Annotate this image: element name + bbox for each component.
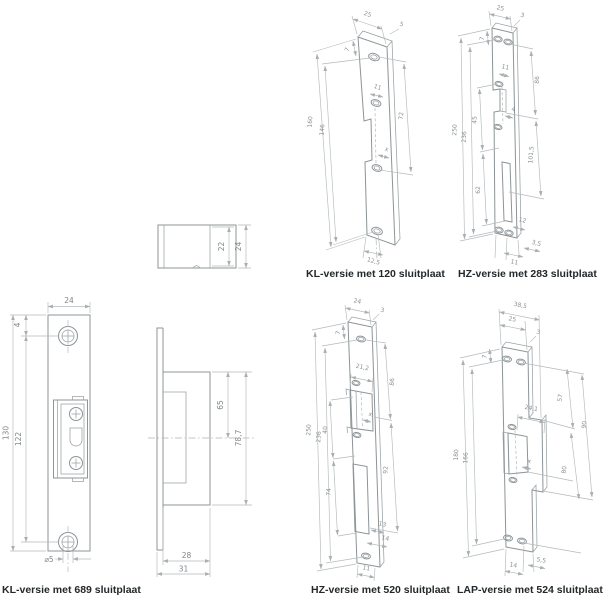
dim-kl120-width: 25 [363,10,373,19]
dim-lap524-thickness: 3 [536,329,541,337]
dim-front-hole-dia: ⌀5 [44,555,54,564]
dim-kl120-bottom: 12,5 [366,256,381,266]
drawing-lap524: 38,5 25 3 7 180 166 24,1 57 90 80 x 5,5 … [453,301,593,576]
dim-hz283-latch: 11 [501,63,510,72]
dim-hz283-bottom-b: 3,5 [531,239,542,248]
dim-top-inner: 22 [217,242,226,252]
dim-kl120-latch: 11 [373,83,383,92]
dim-lap524-bottom-a: 5,5 [536,556,547,565]
label-kl120: KL-versie met 120 sluitplaat [306,268,445,280]
dim-side-body-width: 28 [182,551,192,560]
drawing-hz283: 25 3 7 250 236 45 62 86 101,5 11 4 12 3,… [451,4,544,267]
screw-hole [502,355,512,362]
screw [353,432,362,439]
dim-lap524-right-a: 57 [557,394,565,403]
dim-lap524-width: 25 [508,315,517,323]
dim-lap524-right-b: 90 [581,421,589,430]
dim-hz520-right-a: 86 [389,378,397,386]
dim-lap524-length: 180 [453,449,460,461]
label-kl689: KL-versie met 689 sluitplaat [2,584,141,596]
dim-hz283-thickness: 3 [520,12,525,20]
dim-kl120-top-offset: 7 [344,46,352,52]
screw [508,424,517,431]
dim-top-outer: 24 [234,242,243,252]
dim-hz283-right-a: 86 [534,76,542,84]
dim-hz520-width: 24 [353,297,362,305]
dim-hz520-length: 250 [305,424,312,436]
dim-hz283-bottom-a: 12 [518,216,527,225]
dim-hz520-left-a: 40 [322,426,329,434]
screw-hole [361,552,371,559]
dim-kl120-length: 160 [307,116,315,128]
dim-side-depth-upper: 65 [216,400,225,410]
dim-hz283-left-a: 45 [471,116,478,124]
dim-hz520-right-b: 92 [382,466,390,474]
screw [494,124,503,131]
dim-hz283-left-b: 62 [475,186,482,194]
dim-hz520-thickness: 3 [380,307,385,315]
dim-hz520-top-offset: 7 [335,330,343,335]
label-lap524: LAP-versie met 524 sluitplaat [457,584,603,596]
dim-hz520-bottom-b: 14 [381,534,390,542]
dim-hz283-hole-spacing: 236 [461,131,468,143]
dim-lap524-latch: 24,1 [524,404,539,413]
drawing-kl120: 25 5 7 160 146 72 11 x 12,5 [307,10,413,267]
dim-hz283-bottom-c: 11 [510,258,519,267]
dim-lap524-right-c: 80 [561,466,569,475]
drawing-front-view-689: 24 130 122 4 ⌀5 [2,296,92,572]
dim-hz520-latch: 21,2 [355,363,370,373]
plate-outline [348,322,380,567]
dim-lap524-bottom-b: 14 [509,561,518,569]
dim-hz283-width: 25 [496,4,505,13]
screw [509,477,518,484]
dim-hz520-bottom-c: 11 [362,564,371,572]
dim-lap524-x: x [527,458,532,466]
drawing-side-view: 65 78,7 28 31 [148,328,254,577]
dim-side-total-width: 31 [179,565,189,574]
screw-hole [368,52,381,62]
label-hz520: HZ-versie met 520 sluitplaat [311,584,450,596]
screw [371,163,382,172]
faceplate-edge [157,328,163,550]
dim-front-length: 130 [2,426,11,441]
dim-front-top-offset: 4 [13,322,22,327]
screw [370,98,381,107]
screw-hole [516,358,526,365]
dim-kl120-x: x [384,146,390,154]
technical-drawing-sheet: 24 130 122 4 ⌀5 KL-versie met 689 sluitp… [0,0,613,600]
drawing-hz520: 24 3 7 250 236 40 74 21,2 86 92 x 13 14 … [305,297,398,581]
dim-hz283-length: 250 [451,124,458,136]
strike-body [54,397,88,482]
dim-kl120-right: 72 [398,112,406,120]
dim-front-hole-spacing: 122 [14,432,23,447]
screw-hole [371,226,384,236]
dim-kl120-hole-spacing: 146 [319,124,327,136]
screw-hole [503,534,513,541]
dim-lap524-lip-width: 38,5 [513,301,528,310]
dim-hz283-top-offset: 7 [479,36,487,41]
dim-hz520-left-b: 74 [325,488,332,496]
dim-lap524-hole-spacing: 166 [462,452,469,464]
plate-outline [358,37,395,245]
dim-kl120-thickness: 5 [399,21,405,29]
drawing-top-view: 22 24 [158,225,251,268]
dim-hz283-mid: 4 [511,106,516,114]
screw-hole [494,226,503,233]
screw [352,380,361,387]
dim-side-depth-total: 78,7 [234,429,243,446]
dim-lap524-top-offset: 7 [481,354,489,359]
label-hz283: HZ-versie met 283 sluitplaat [458,268,597,280]
plate-outline [492,28,517,238]
screw-hole [493,35,502,42]
dim-front-width: 24 [64,296,74,305]
screw-hole [356,335,366,342]
dim-hz520-bottom-a: 13 [378,520,387,528]
dim-hz283-right-b: 101,5 [527,146,535,164]
